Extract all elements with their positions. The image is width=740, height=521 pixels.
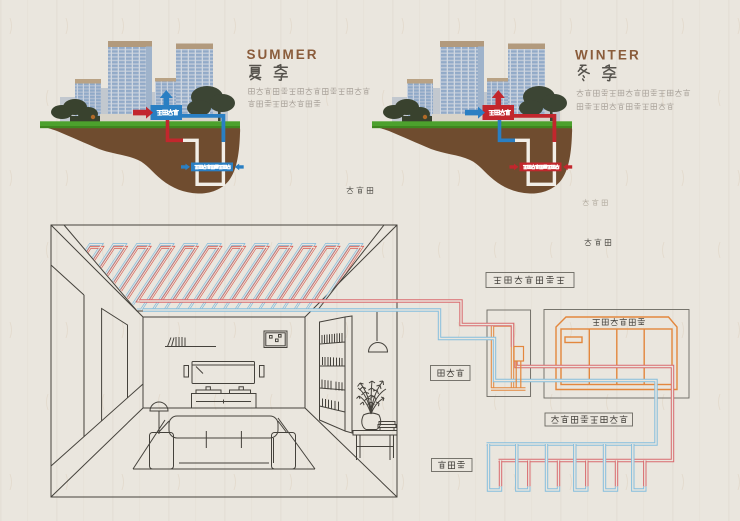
svg-text:WINTER: WINTER: [575, 47, 641, 62]
svg-text:SUMMER: SUMMER: [247, 47, 319, 62]
